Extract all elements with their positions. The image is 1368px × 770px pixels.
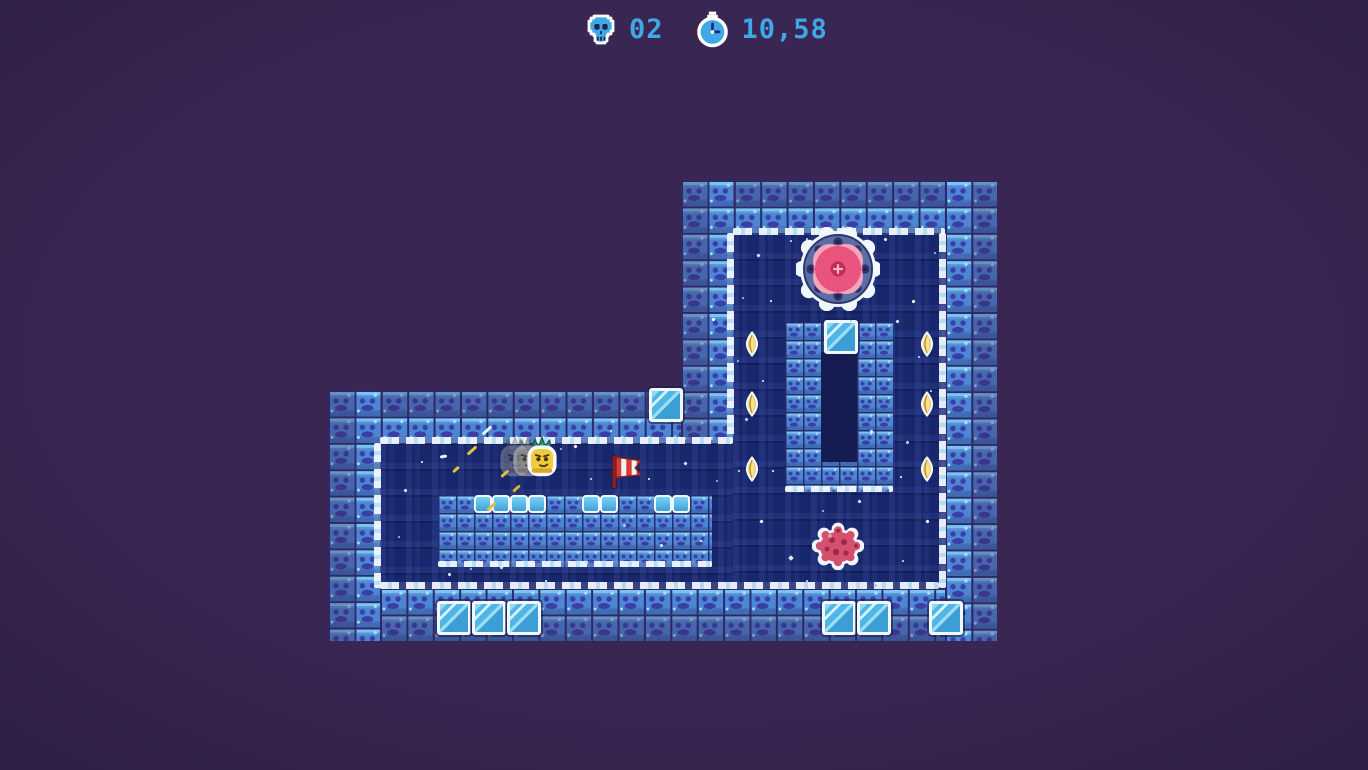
- wall-outer-shade: [681, 180, 707, 443]
- mini-ice-block: [672, 495, 690, 513]
- ice-glass-block: [822, 601, 856, 635]
- death-count-value: 02: [629, 13, 664, 47]
- mini-ice-block: [654, 495, 672, 513]
- player-pineapple: [524, 436, 560, 478]
- ice-glass-block: [824, 320, 858, 354]
- ice-edge: [438, 561, 712, 567]
- right-room-left-wall: [681, 180, 733, 443]
- wall-outer-shade: [328, 390, 354, 641]
- ice-edge: [380, 582, 939, 589]
- coin-gem: [745, 456, 759, 482]
- ice-glass-block: [857, 601, 891, 635]
- ice-glass-block: [472, 601, 506, 635]
- coin-gem: [920, 331, 934, 357]
- ice-edge: [374, 443, 381, 588]
- timer-value: 10,58: [742, 13, 828, 47]
- game-scene[interactable]: 02 10,58: [0, 0, 1368, 770]
- stopwatch-icon: [696, 11, 729, 48]
- ice-edge: [727, 233, 734, 437]
- mini-ice-block: [600, 495, 618, 513]
- coin-gem: [745, 391, 759, 417]
- timer: 10,58: [696, 11, 828, 48]
- skull-icon: [586, 14, 616, 46]
- ice-glass-block: [929, 601, 963, 635]
- ice-glass-block: [649, 388, 683, 422]
- ice-glass-block: [437, 601, 471, 635]
- spike-blob-enemy: [812, 522, 864, 570]
- hud: 02 10,58: [586, 11, 828, 48]
- coin-gem: [920, 456, 934, 482]
- saw-blade-hazard: [796, 227, 880, 311]
- ice-edge: [939, 233, 946, 588]
- death-counter: 02: [586, 13, 664, 47]
- wall-outer-shade: [328, 390, 681, 416]
- coin-gem: [920, 391, 934, 417]
- wall-outer-shade: [971, 180, 997, 641]
- ice-glass-block: [507, 601, 541, 635]
- mini-ice-block: [510, 495, 528, 513]
- checkpoint-flag: [606, 452, 646, 492]
- coin-gem: [745, 331, 759, 357]
- mini-ice-block: [582, 495, 600, 513]
- ice-edge: [785, 486, 893, 492]
- right-room-right-wall: [945, 180, 997, 641]
- ring-hollow: [821, 352, 857, 462]
- left-room-left-wall: [328, 390, 380, 641]
- mini-ice-block: [528, 495, 546, 513]
